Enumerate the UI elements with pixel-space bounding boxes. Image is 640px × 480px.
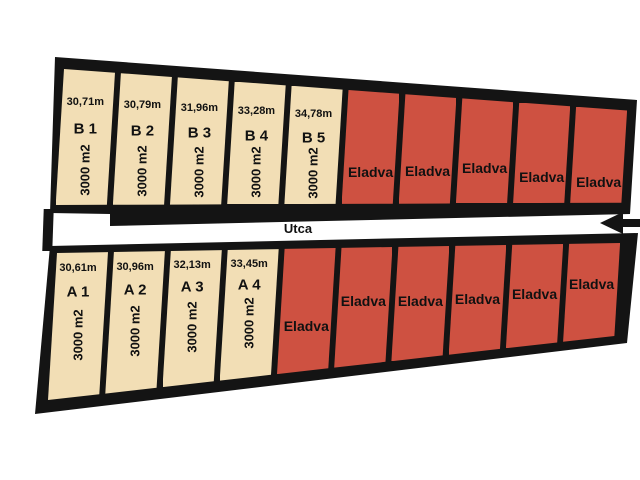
plot-A1[interactable]: 30,61mA 13000 m2 [48, 252, 108, 400]
plot-frontage: 31,96m [170, 102, 229, 114]
plot-sold-top-6[interactable]: Eladva [342, 90, 400, 204]
plot-area: 3000 m2 [192, 146, 207, 197]
plot-status-label: Eladva [513, 169, 570, 185]
plot-sold-top-10[interactable]: Eladva [570, 107, 627, 203]
plot-label: B 1 [56, 120, 115, 137]
plot-label: B 2 [113, 123, 172, 140]
plot-label: A 3 [163, 279, 222, 296]
plot-sold-bottom-5[interactable]: Eladva [277, 248, 336, 374]
plot-B4[interactable]: 33,28mB 43000 m2 [227, 82, 286, 205]
plot-area: 3000 m2 [249, 147, 264, 198]
plot-status-label: Eladva [563, 276, 620, 292]
plot-map-canvas: 30,71mB 13000 m230,79mB 23000 m231,96mB … [0, 0, 640, 480]
plot-frontage: 33,45m [220, 258, 279, 270]
plot-area: 3000 m2 [78, 144, 93, 195]
plot-A2[interactable]: 30,96mA 23000 m2 [105, 251, 165, 394]
plot-sold-bottom-10[interactable]: Eladva [563, 243, 620, 342]
plot-label: B 5 [284, 129, 342, 146]
plot-status-label: Eladva [449, 291, 507, 307]
plot-sold-bottom-7[interactable]: Eladva [391, 246, 449, 361]
plot-sold-top-7[interactable]: Eladva [399, 94, 457, 204]
plot-frontage: 30,61m [48, 262, 108, 274]
plot-status-label: Eladva [456, 160, 513, 176]
plot-sold-bottom-8[interactable]: Eladva [449, 245, 507, 355]
left-border-bridge [42, 209, 53, 251]
plot-frontage: 30,79m [113, 99, 172, 111]
plot-sold-top-9[interactable]: Eladva [513, 103, 570, 204]
plot-sold-bottom-9[interactable]: Eladva [506, 244, 563, 348]
plot-B5[interactable]: 34,78mB 53000 m2 [284, 86, 342, 204]
plot-sold-bottom-6[interactable]: Eladva [334, 247, 392, 368]
plot-A4[interactable]: 33,45mA 43000 m2 [220, 249, 279, 381]
plot-area: 3000 m2 [71, 309, 86, 360]
plot-B2[interactable]: 30,79mB 23000 m2 [113, 73, 172, 205]
plot-area: 3000 m2 [306, 148, 321, 199]
plot-area: 3000 m2 [128, 305, 143, 356]
plot-status-label: Eladva [334, 293, 392, 309]
plot-label: A 1 [48, 284, 108, 301]
plot-status-label: Eladva [342, 164, 400, 180]
plot-frontage: 34,78m [284, 108, 342, 120]
plot-status-label: Eladva [570, 174, 627, 190]
plot-status-label: Eladva [391, 293, 449, 309]
plot-area: 3000 m2 [242, 297, 257, 348]
plot-frontage: 33,28m [227, 105, 286, 117]
plot-area: 3000 m2 [185, 301, 200, 352]
plot-status-label: Eladva [506, 286, 563, 302]
plot-sold-top-8[interactable]: Eladva [456, 98, 513, 203]
plot-label: B 3 [170, 125, 229, 142]
plot-frontage: 30,71m [56, 96, 115, 108]
plot-frontage: 30,96m [105, 261, 165, 273]
street-direction-arrow-shaft [620, 219, 640, 227]
plot-label: A 2 [105, 281, 165, 298]
plot-A3[interactable]: 32,13mA 33000 m2 [163, 250, 222, 387]
plot-B1[interactable]: 30,71mB 13000 m2 [56, 69, 115, 205]
plot-status-label: Eladva [399, 163, 457, 179]
plot-label: A 4 [220, 276, 279, 293]
plot-area: 3000 m2 [135, 145, 150, 196]
plot-label: B 4 [227, 127, 286, 144]
plot-status-label: Eladva [277, 318, 336, 334]
plot-B3[interactable]: 31,96mB 33000 m2 [170, 77, 229, 204]
street-label: Utca [263, 221, 333, 236]
plot-frontage: 32,13m [163, 259, 222, 271]
